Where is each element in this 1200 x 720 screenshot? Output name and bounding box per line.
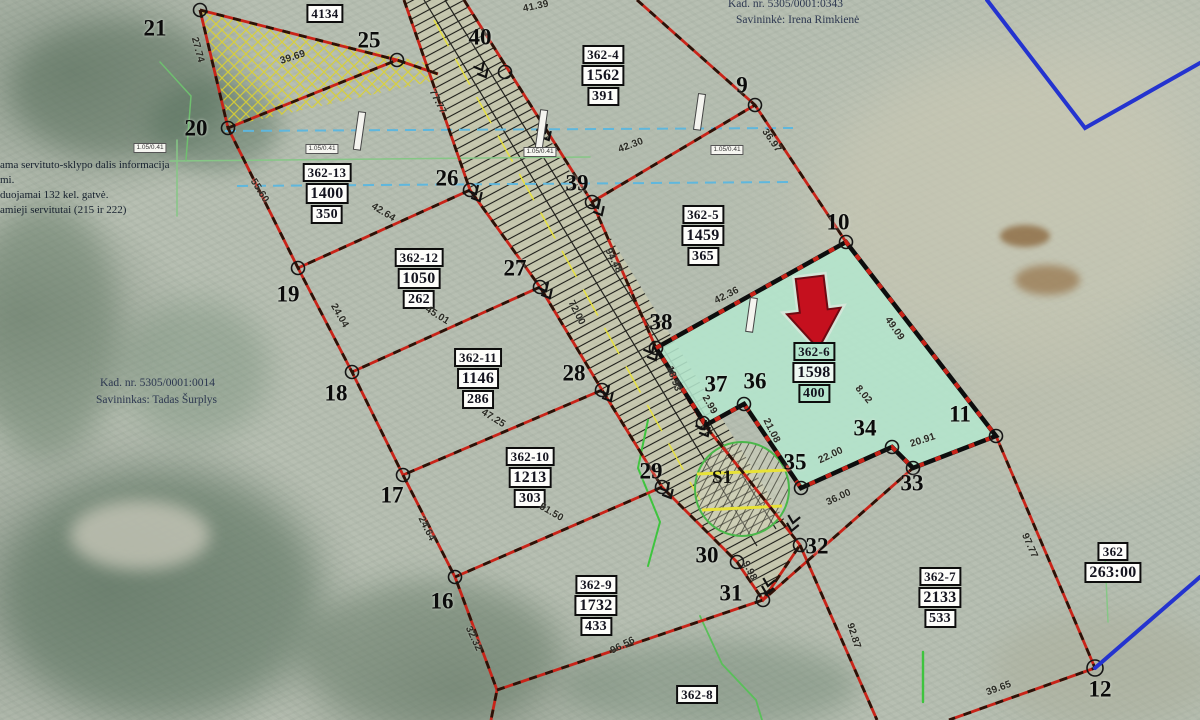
map-line-network (0, 0, 1200, 720)
cadastral-map: 4134 362-4 1562 391 362-13 1400 350 (0, 0, 1200, 720)
s1-circle-area (695, 442, 789, 536)
yellow-hatch-zone (202, 12, 438, 126)
blue-boundary-lines (987, 0, 1200, 668)
